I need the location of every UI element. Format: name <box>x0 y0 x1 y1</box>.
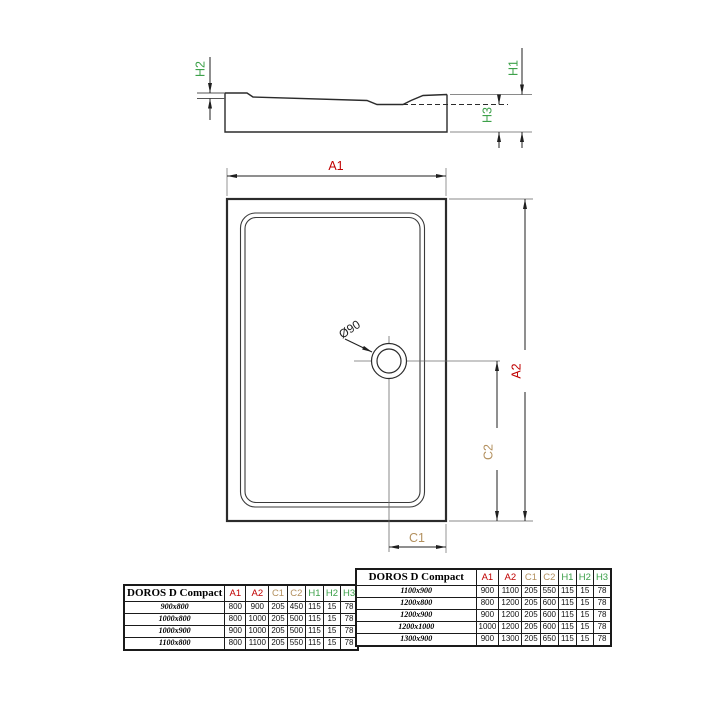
value-cell: 900 <box>476 586 499 598</box>
value-cell: 15 <box>576 610 593 622</box>
column-header-h1: H1 <box>559 569 577 586</box>
value-cell: 15 <box>576 586 593 598</box>
table-row: 900x8008009002054501151578 <box>124 602 358 614</box>
value-cell: 1200 <box>499 622 522 634</box>
column-header-h2: H2 <box>323 585 340 602</box>
table-row: 1200x1000100012002056001151578 <box>356 622 611 634</box>
value-cell: 205 <box>522 586 540 598</box>
value-cell: 1000 <box>246 626 269 638</box>
value-cell: 1200 <box>499 598 522 610</box>
value-cell: 78 <box>593 622 611 634</box>
column-header-a1: A1 <box>476 569 499 586</box>
drawing-sheet: H2 H1 H3 Ø90 A1 <box>0 0 720 720</box>
table-row: 1000x90090010002055001151578 <box>124 626 358 638</box>
column-header-h2: H2 <box>576 569 593 586</box>
value-cell: 115 <box>559 598 577 610</box>
value-cell: 800 <box>225 638 246 651</box>
table-row: 1300x90090013002056501151578 <box>356 634 611 647</box>
value-cell: 600 <box>540 610 558 622</box>
value-cell: 115 <box>559 586 577 598</box>
value-cell: 115 <box>559 610 577 622</box>
value-cell: 1200 <box>499 610 522 622</box>
table-title: DOROS D Compact <box>356 569 476 586</box>
spec-table-left: DOROS D CompactA1A2C1C2H1H2H3 900x800800… <box>123 584 359 651</box>
table-row: 1200x90090012002056001151578 <box>356 610 611 622</box>
value-cell: 15 <box>323 638 340 651</box>
dim-label-h3: H3 <box>480 107 494 123</box>
dim-label-c2: C2 <box>481 444 495 460</box>
model-cell: 1300x900 <box>356 634 476 647</box>
value-cell: 800 <box>225 614 246 626</box>
value-cell: 78 <box>593 610 611 622</box>
value-cell: 115 <box>306 602 324 614</box>
model-cell: 1000x900 <box>124 626 225 638</box>
column-header-c2: C2 <box>540 569 558 586</box>
column-header-h1: H1 <box>306 585 324 602</box>
column-header-c2: C2 <box>287 585 305 602</box>
value-cell: 650 <box>540 634 558 647</box>
value-cell: 600 <box>540 598 558 610</box>
value-cell: 115 <box>306 626 324 638</box>
value-cell: 600 <box>540 622 558 634</box>
value-cell: 115 <box>306 638 324 651</box>
value-cell: 800 <box>476 598 499 610</box>
value-cell: 550 <box>287 638 305 651</box>
value-cell: 1100 <box>499 586 522 598</box>
value-cell: 205 <box>522 634 540 647</box>
value-cell: 115 <box>306 614 324 626</box>
value-cell: 15 <box>576 598 593 610</box>
value-cell: 1000 <box>246 614 269 626</box>
tray-outer-rect <box>227 199 446 521</box>
value-cell: 900 <box>476 634 499 647</box>
spec-table-right: DOROS D CompactA1A2C1C2H1H2H3 1100x90090… <box>355 568 612 647</box>
dim-label-h2: H2 <box>193 61 207 77</box>
column-header-a1: A1 <box>225 585 246 602</box>
value-cell: 15 <box>323 602 340 614</box>
value-cell: 205 <box>269 638 287 651</box>
model-cell: 1100x800 <box>124 638 225 651</box>
value-cell: 15 <box>576 634 593 647</box>
table-header-row: DOROS D CompactA1A2C1C2H1H2H3 <box>124 585 358 602</box>
dim-label-h1: H1 <box>506 60 520 76</box>
value-cell: 500 <box>287 626 305 638</box>
table-row: 1100x90090011002055501151578 <box>356 586 611 598</box>
value-cell: 15 <box>323 614 340 626</box>
value-cell: 205 <box>269 626 287 638</box>
column-header-a2: A2 <box>246 585 269 602</box>
table-row: 1000x80080010002055001151578 <box>124 614 358 626</box>
value-cell: 900 <box>246 602 269 614</box>
section-view: H2 H1 H3 <box>193 48 532 148</box>
value-cell: 800 <box>225 602 246 614</box>
value-cell: 1000 <box>476 622 499 634</box>
value-cell: 500 <box>287 614 305 626</box>
value-cell: 450 <box>287 602 305 614</box>
model-cell: 1200x900 <box>356 610 476 622</box>
table-header-row: DOROS D CompactA1A2C1C2H1H2H3 <box>356 569 611 586</box>
model-cell: 1200x800 <box>356 598 476 610</box>
column-header-c1: C1 <box>269 585 287 602</box>
value-cell: 15 <box>323 626 340 638</box>
value-cell: 205 <box>522 610 540 622</box>
value-cell: 900 <box>225 626 246 638</box>
table-title: DOROS D Compact <box>124 585 225 602</box>
dim-label-a1: A1 <box>328 159 343 173</box>
plan-view: Ø90 A1 A2 C2 C1 <box>227 159 533 553</box>
column-header-c1: C1 <box>522 569 540 586</box>
column-header-a2: A2 <box>499 569 522 586</box>
model-cell: 1100x900 <box>356 586 476 598</box>
value-cell: 550 <box>540 586 558 598</box>
model-cell: 1200x1000 <box>356 622 476 634</box>
value-cell: 15 <box>576 622 593 634</box>
value-cell: 205 <box>269 602 287 614</box>
value-cell: 78 <box>593 634 611 647</box>
value-cell: 115 <box>559 634 577 647</box>
table-row: 1100x80080011002055501151578 <box>124 638 358 651</box>
model-cell: 1000x800 <box>124 614 225 626</box>
value-cell: 1100 <box>246 638 269 651</box>
value-cell: 78 <box>593 598 611 610</box>
value-cell: 115 <box>559 622 577 634</box>
tray-profile-outline <box>225 93 447 132</box>
dim-label-a2: A2 <box>509 363 523 378</box>
value-cell: 78 <box>593 586 611 598</box>
column-header-h3: H3 <box>593 569 611 586</box>
table-row: 1200x80080012002056001151578 <box>356 598 611 610</box>
value-cell: 1300 <box>499 634 522 647</box>
value-cell: 205 <box>269 614 287 626</box>
value-cell: 900 <box>476 610 499 622</box>
model-cell: 900x800 <box>124 602 225 614</box>
value-cell: 205 <box>522 622 540 634</box>
value-cell: 205 <box>522 598 540 610</box>
dim-label-c1: C1 <box>409 531 425 545</box>
